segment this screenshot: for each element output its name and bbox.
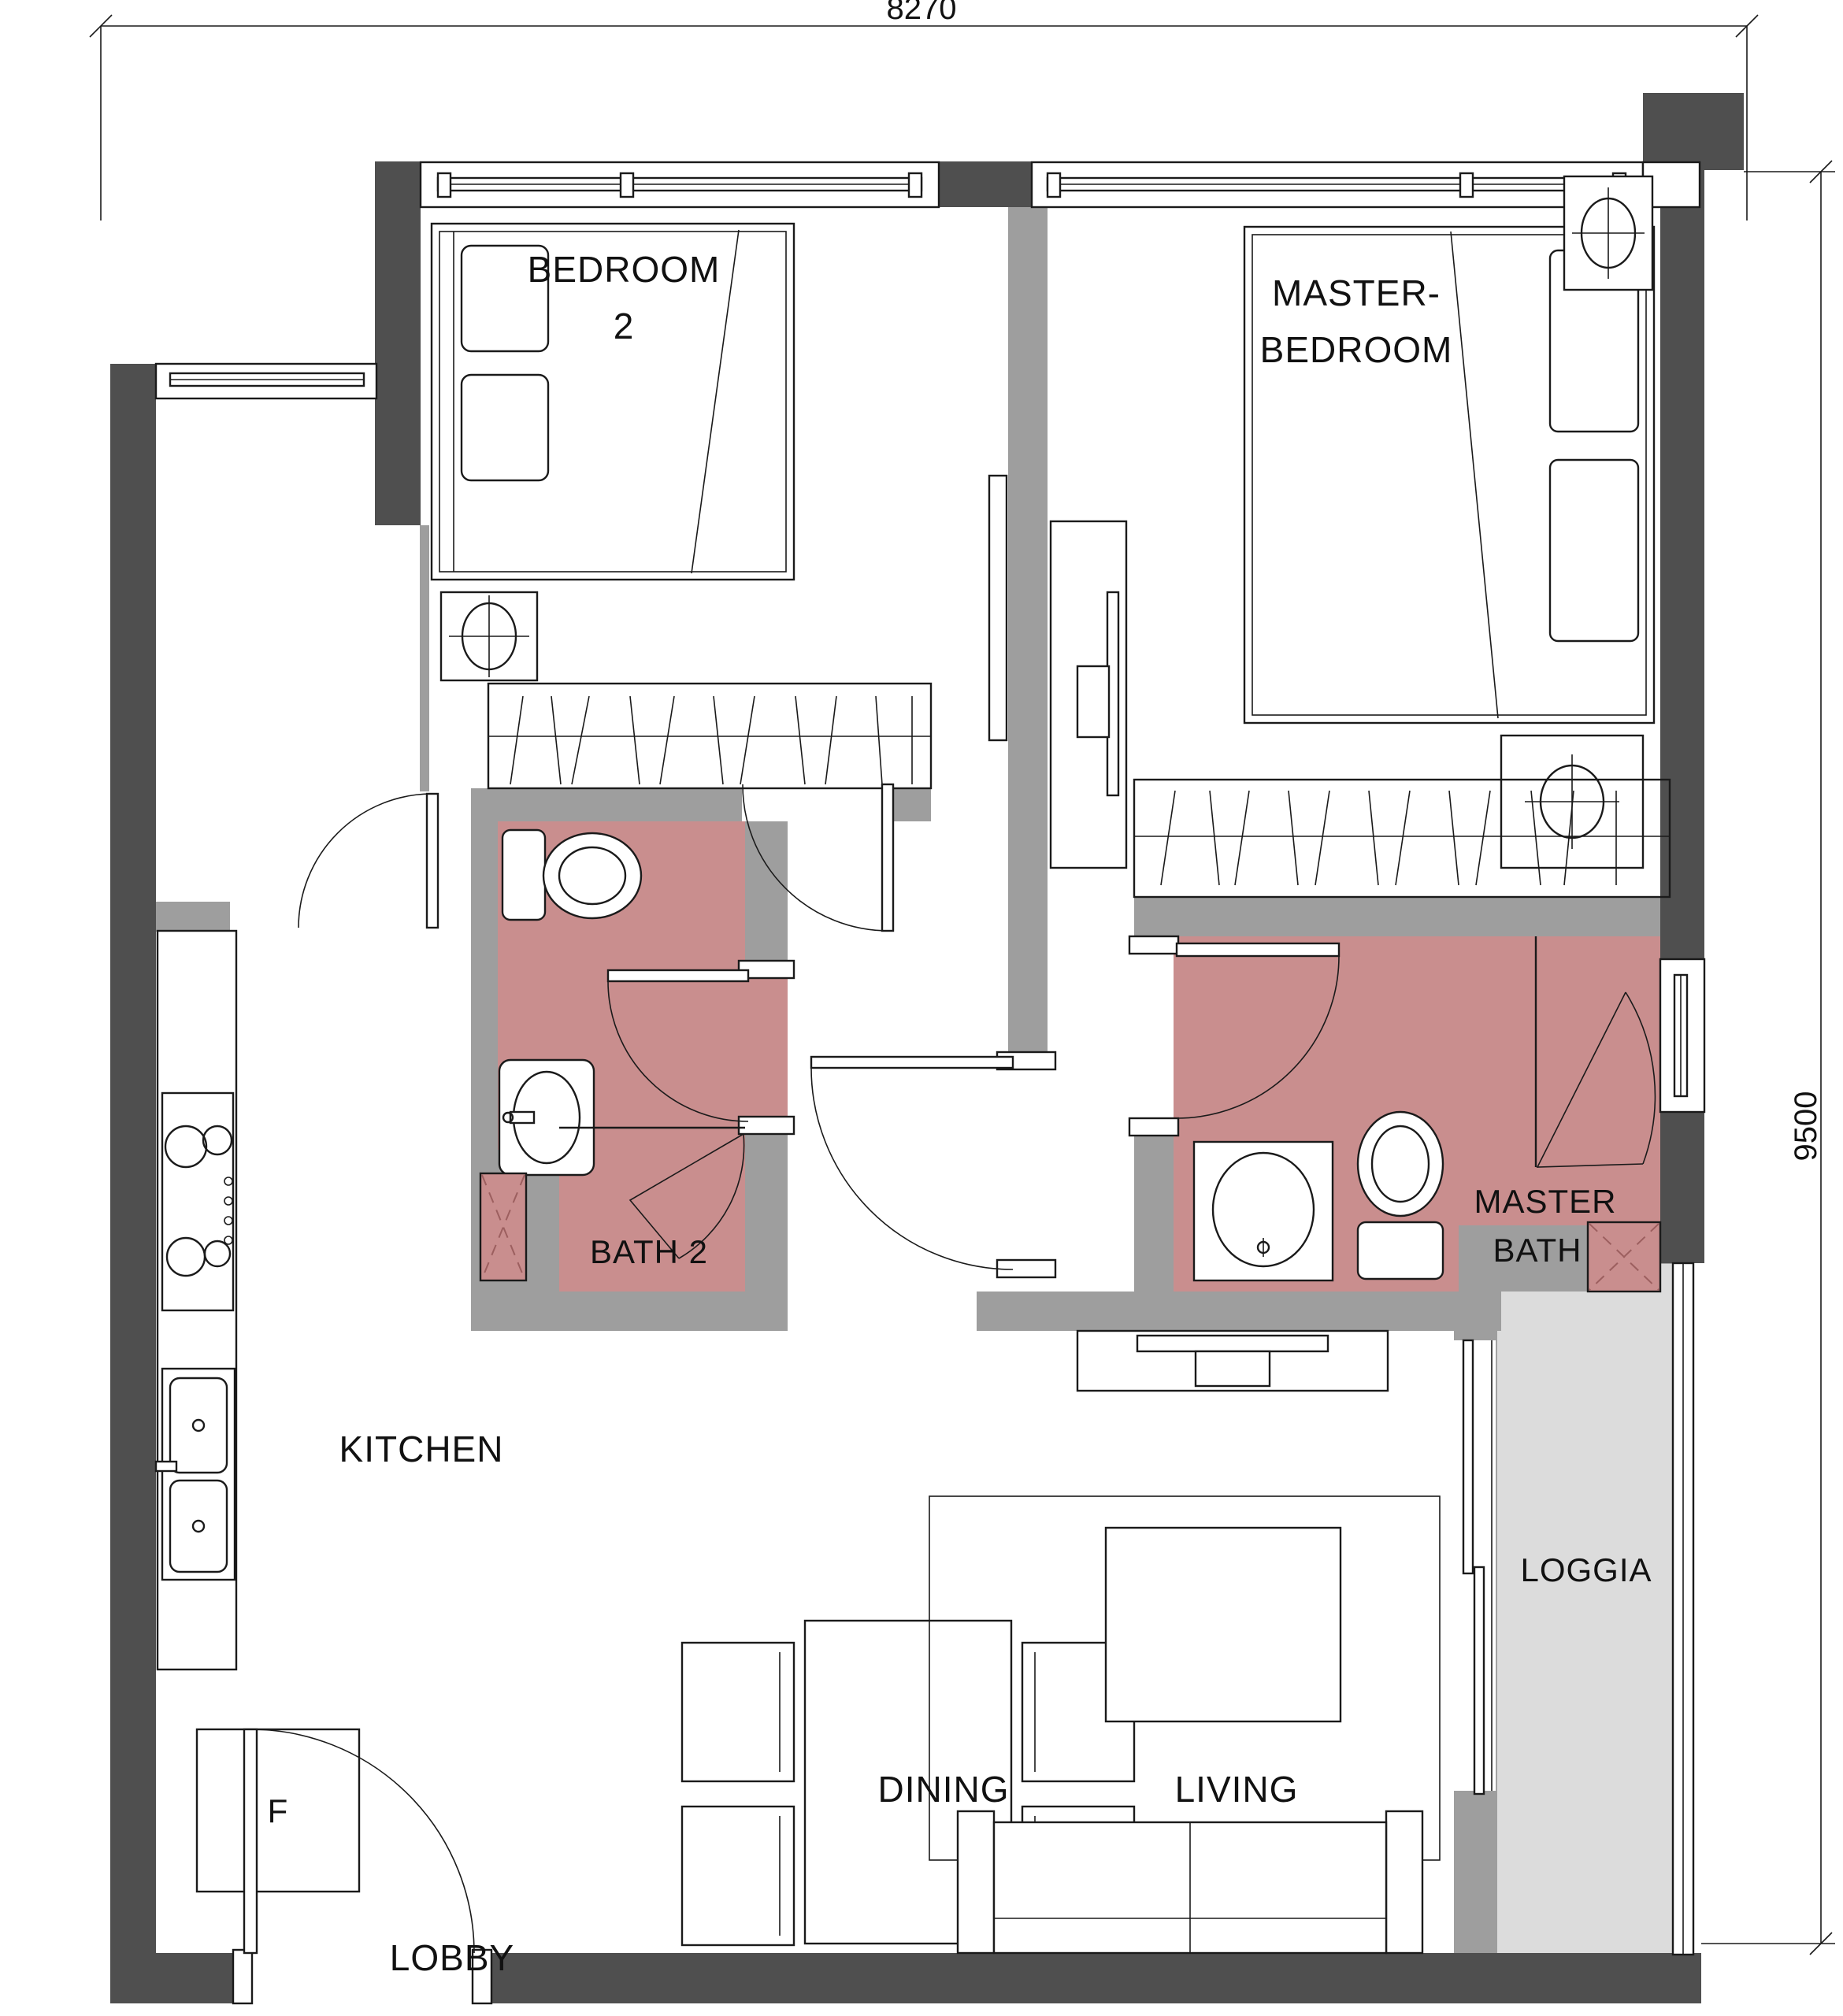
label-master-bedroom-line2: BEDROOM: [1260, 329, 1453, 370]
toilet-bath2: [502, 830, 641, 920]
wall-master-bath-top: [1134, 897, 1670, 936]
label-master-bedroom-line1: MASTER-: [1272, 272, 1441, 313]
wall-kitchen-stub: [156, 902, 230, 932]
wardrobe-bedroom2: [488, 684, 931, 788]
shaft-bath2: [480, 1173, 526, 1280]
wall-loggia-pier-bottom: [1454, 1791, 1496, 1955]
floor-plan-page: F: [0, 0, 1843, 2016]
wall-left: [110, 364, 156, 1953]
living-tv: [1137, 1336, 1328, 1351]
stove: [162, 1093, 233, 1310]
sofa: [958, 1811, 1422, 1953]
label-living: LIVING: [1175, 1769, 1299, 1810]
loggia-area: [1496, 1263, 1673, 1955]
wall-bedroom2-left: [375, 161, 421, 525]
window-alcove: [156, 364, 376, 398]
wall-bath2-bottom: [471, 1291, 788, 1331]
wall-window-pier: [939, 161, 1032, 207]
label-kitchen: KITCHEN: [339, 1429, 504, 1469]
wall-bottom-left: [110, 1953, 250, 2003]
dining-chair: [682, 1807, 794, 1945]
master-tv-console: [1051, 521, 1126, 868]
door-kitchen: [299, 794, 438, 928]
label-lobby: LOBBY: [390, 1937, 514, 1978]
bedroom2-furniture: [432, 224, 1007, 788]
label-bedroom2-line2: 2: [614, 306, 635, 346]
loggia-floor: [1496, 1263, 1673, 1955]
loggia-sliding-door: [1463, 1340, 1492, 1794]
fridge: F: [197, 1729, 359, 1892]
label-master-bath-line1: MASTER: [1474, 1183, 1616, 1220]
coffee-table: [1106, 1528, 1341, 1721]
dimension-right: 9500: [1701, 161, 1835, 1955]
label-dining: DINING: [878, 1769, 1010, 1810]
label-master-bath-line2: BATH: [1493, 1232, 1582, 1269]
dining-chair: [682, 1643, 794, 1781]
wall-right-upper: [1660, 170, 1704, 959]
wall-corridor-living: [977, 1291, 1501, 1331]
toilet-master: [1358, 1112, 1443, 1279]
wall-master-bath-left: [1134, 1118, 1174, 1291]
shaft-master-bath: [1588, 1222, 1660, 1291]
loggia-railing: [1673, 1263, 1693, 1955]
kitchen-sink: [156, 1369, 235, 1580]
label-bath2: BATH 2: [590, 1233, 708, 1270]
wardrobe-hangers: [510, 696, 912, 784]
wall-bottom-main: [476, 1953, 1701, 2003]
dimension-width-label: 8270: [887, 0, 957, 26]
window-master-bath: [1660, 959, 1704, 1112]
sink-bath2: [499, 1060, 594, 1175]
door-master-bedroom: [811, 1057, 1013, 1269]
tv-panel-bedroom2: [989, 476, 1007, 740]
wall-right-lower: [1660, 1112, 1704, 1263]
wall-bath2-right-upper: [745, 821, 788, 976]
wall-niche-partition: [420, 525, 429, 791]
wall-bath2-top-right: [893, 788, 931, 821]
wall-loggia-pier-top: [1454, 1291, 1496, 1340]
window-bedroom2: [421, 162, 939, 207]
master-pillow-2: [1550, 460, 1638, 641]
floor-plan-canvas: F: [0, 0, 1843, 2016]
wall-bath2-top-left: [471, 788, 742, 821]
label-loggia: LOGGIA: [1520, 1551, 1652, 1588]
bedside-table-2: [441, 592, 537, 680]
label-bedroom2-line1: BEDROOM: [528, 249, 721, 290]
living-tv-console: [1077, 1331, 1388, 1391]
fridge-label: F: [268, 1792, 289, 1829]
wall-bedroom-partition: [1008, 207, 1048, 1059]
dimension-height-label: 9500: [1789, 1091, 1823, 1162]
sink-master: [1194, 1142, 1333, 1280]
bedside-table-master-top: [1564, 176, 1652, 290]
wall-top-right-corner: [1643, 93, 1744, 170]
bed2-pillow-2: [462, 375, 548, 480]
